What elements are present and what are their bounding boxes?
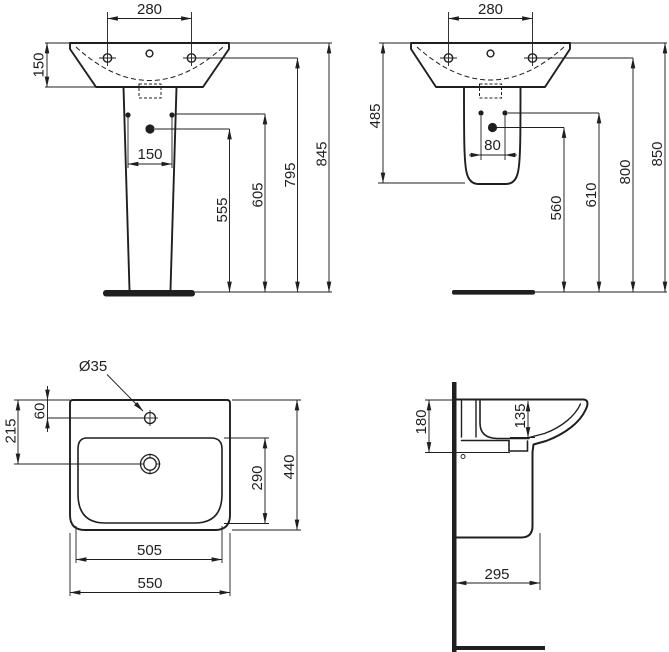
dim-label-overall-width: 550 bbox=[137, 575, 162, 592]
overflow-hole-icon bbox=[146, 50, 153, 57]
view-front-semi-pedestal: 280 485 80 560 610 800 850 bbox=[367, 1, 667, 295]
dim-label-rim-to-tap-centre: 60 bbox=[32, 403, 49, 420]
technical-drawing-sheet: 280 150 150 555 605 795 845 bbox=[0, 0, 669, 652]
fixing-bolt-dots bbox=[478, 110, 507, 132]
dim-label-rim-to-underside: 180 bbox=[413, 409, 430, 434]
dim-label-fixing-centres: 80 bbox=[484, 137, 501, 154]
extension-lines bbox=[378, 12, 667, 292]
dim-label-outlet-height: 555 bbox=[214, 197, 231, 222]
dim-label-front-apron-depth: 135 bbox=[512, 403, 529, 428]
dim-label-tap-centres: 280 bbox=[478, 1, 503, 18]
view-front-pedestal: 280 150 150 555 605 795 845 bbox=[31, 1, 333, 297]
dim-label-overall-height: 850 bbox=[649, 141, 666, 166]
drain-outlet-icon bbox=[140, 454, 161, 475]
dim-label-semi-pedestal-height: 485 bbox=[367, 103, 384, 128]
dim-label-outlet-height: 560 bbox=[548, 195, 565, 220]
tap-hole-icon bbox=[440, 54, 541, 62]
dim-label-tap-hole-diameter: Ø35 bbox=[79, 358, 107, 375]
dim-label-tap-centres: 280 bbox=[137, 1, 162, 18]
bowl-rim-hidden-line bbox=[76, 47, 223, 81]
fixing-bolt-dots bbox=[125, 112, 174, 133]
washbasin-dimension-drawing: 280 150 150 555 605 795 845 bbox=[0, 0, 669, 652]
dim-label-rim-to-basin-bottom: 150 bbox=[31, 52, 48, 77]
dim-label-overall-depth: 440 bbox=[281, 454, 298, 479]
dim-label-tap-height: 795 bbox=[282, 162, 299, 187]
dim-label-overall-height: 845 bbox=[314, 141, 331, 166]
tap-hole-icon bbox=[99, 54, 200, 62]
basin-front-inner-line bbox=[529, 404, 581, 438]
dim-label-fixing-centres: 150 bbox=[137, 146, 162, 163]
dim-label-bowl-width: 505 bbox=[137, 542, 162, 559]
dim-label-tap-height: 800 bbox=[617, 159, 634, 184]
bowl-rim-hidden-line bbox=[417, 47, 564, 80]
extension-lines bbox=[14, 400, 301, 596]
dim-label-wall-projection: 295 bbox=[484, 566, 509, 583]
floor-line bbox=[452, 290, 535, 295]
outlet-dot bbox=[145, 124, 154, 133]
overflow-hole-icon bbox=[487, 50, 494, 57]
fixing-hole-icon bbox=[461, 455, 465, 459]
wall bbox=[452, 382, 457, 652]
dim-label-bowl-depth: 290 bbox=[249, 465, 266, 490]
extension-lines bbox=[45, 12, 332, 292]
outlet-dot bbox=[488, 123, 497, 132]
view-side-section: 180 135 295 bbox=[413, 382, 587, 652]
view-plan: Ø35 60 215 290 440 505 550 bbox=[3, 358, 302, 596]
bowl-outline-plan bbox=[78, 438, 222, 523]
dim-label-rim-to-outlet-centre: 215 bbox=[3, 418, 20, 443]
floor-line bbox=[452, 646, 545, 650]
dim-label-fixing-height: 605 bbox=[250, 182, 267, 207]
tap-hole-icon bbox=[142, 410, 158, 426]
semi-pedestal bbox=[464, 87, 521, 184]
dim-label-fixing-height: 610 bbox=[583, 182, 600, 207]
pedestal bbox=[103, 87, 195, 297]
pedestal-foot bbox=[103, 290, 195, 297]
dimension-lines bbox=[383, 19, 665, 293]
